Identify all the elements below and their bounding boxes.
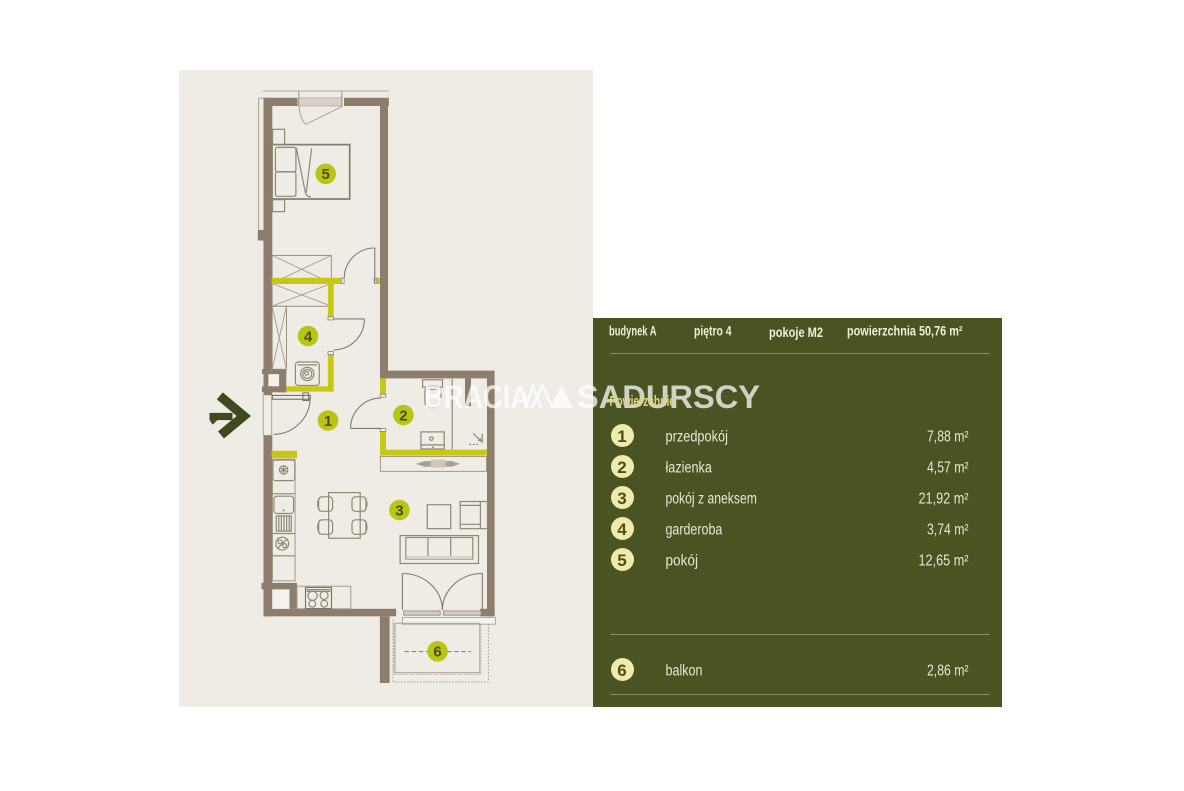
svg-text:Powierzchnie: Powierzchnie xyxy=(610,394,676,410)
